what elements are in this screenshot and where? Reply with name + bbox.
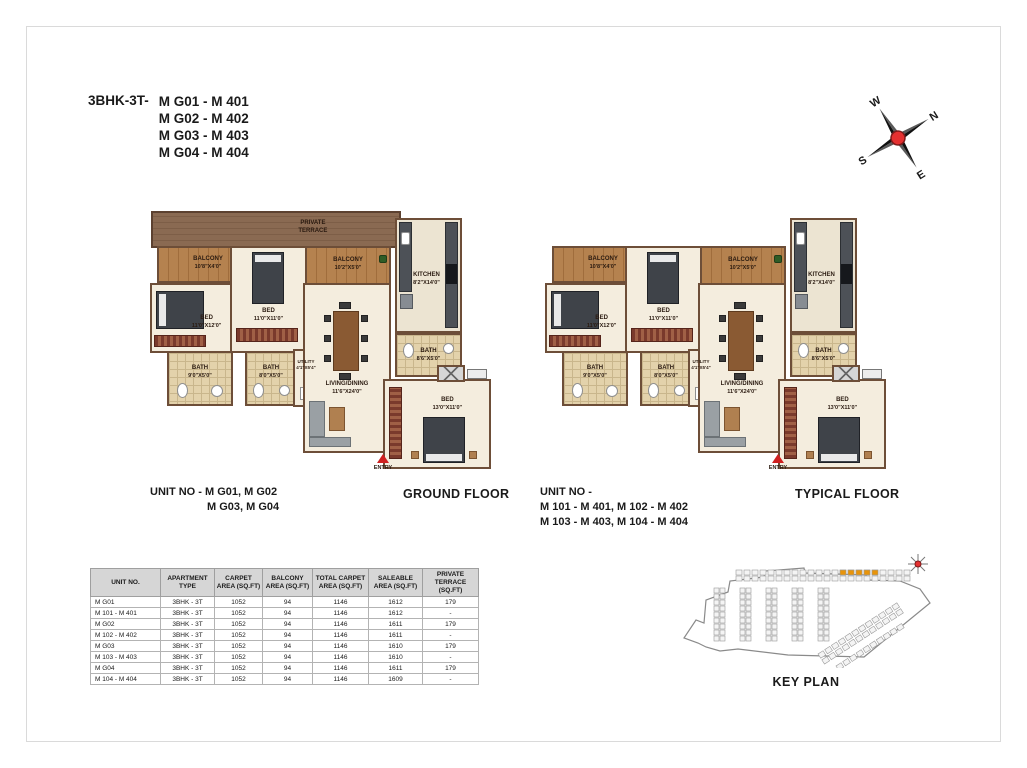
side-table-furniture <box>469 451 477 459</box>
table-cell: 1610 <box>369 652 423 663</box>
table-cell: 3BHK - 3T <box>161 641 215 652</box>
sofa-furniture <box>704 437 746 447</box>
table-cell: - <box>423 608 479 619</box>
balcony-mid: BALCONY 10'2"X5'0" <box>305 246 391 285</box>
bathroom-mid: BATH 8'0"X5'0" <box>245 351 297 406</box>
meter-box <box>862 369 882 379</box>
lift-shaft <box>832 365 860 382</box>
side-table-furniture <box>806 451 814 459</box>
title-unit-line: M G04 - M 404 <box>159 144 249 161</box>
compass-north: N <box>928 109 941 123</box>
table-cell: 1612 <box>369 608 423 619</box>
toilet-icon <box>572 383 583 398</box>
key-plan: KEY PLAN <box>670 550 942 689</box>
toilet-icon <box>253 383 264 398</box>
apartment-type-label: 3BHK-3T- <box>88 93 149 161</box>
table-cell: 1146 <box>313 619 369 630</box>
table-cell: 179 <box>423 597 479 608</box>
sink-icon <box>279 385 290 396</box>
chair-furniture <box>324 335 331 342</box>
room-label: BATH <box>587 365 603 371</box>
table-cell: M 104 - M 404 <box>91 674 161 685</box>
unit-line: UNIT NO - M G01, M G02 <box>150 485 279 500</box>
wardrobe-furniture <box>784 387 797 459</box>
room-label: BED <box>595 315 608 321</box>
table-row: M 101 - M 4013BHK - 3T10529411461612- <box>91 608 479 619</box>
unit-line: UNIT NO - <box>540 485 688 500</box>
table-cell: 94 <box>263 608 313 619</box>
room-label: BATH <box>192 365 208 371</box>
entry-label: ENTRY <box>363 465 403 471</box>
bathroom-left: BATH 9'0"X5'0" <box>167 351 233 406</box>
room-dim: 4'1"X5'4" <box>296 365 315 370</box>
table-row: M G023BHK - 3T10529411461611179 <box>91 619 479 630</box>
table-cell: M G02 <box>91 619 161 630</box>
private-terrace-area: PRIVATE TERRACE <box>151 211 401 248</box>
sofa-furniture <box>309 401 325 437</box>
table-cell: 94 <box>263 663 313 674</box>
table-cell: 3BHK - 3T <box>161 630 215 641</box>
kitchen-room: KITCHEN 8'2"X14'0" <box>790 218 857 333</box>
toilet-icon <box>648 383 659 398</box>
table-cell: 94 <box>263 652 313 663</box>
room-dim: 10'8"X4'0" <box>590 264 617 270</box>
table-header-cell: SALEABLE AREA (SQ.FT) <box>369 569 423 597</box>
table-cell: 94 <box>263 619 313 630</box>
compass-icon: W E N S <box>852 90 944 191</box>
room-label: BED <box>262 308 275 314</box>
table-cell: 1146 <box>313 597 369 608</box>
chair-furniture <box>719 335 726 342</box>
room-label: BALCONY <box>333 257 363 263</box>
table-header-cell: BALCONY AREA (SQ.FT) <box>263 569 313 597</box>
table-cell: 1052 <box>215 630 263 641</box>
sink-icon <box>674 385 685 396</box>
title-unit-line: M G01 - M 401 <box>159 93 249 110</box>
room-dim: 11'0"X12'0" <box>587 323 617 329</box>
table-cell: 1611 <box>369 619 423 630</box>
table-cell: 94 <box>263 674 313 685</box>
kitchen-room: KITCHEN 8'2"X14'0" <box>395 218 462 333</box>
table-cell: 1052 <box>215 641 263 652</box>
room-label: LIVING/DINING <box>721 381 764 387</box>
bed-furniture <box>818 417 860 463</box>
table-cell: 1611 <box>369 630 423 641</box>
chair-furniture <box>719 355 726 362</box>
table-cell: 1052 <box>215 674 263 685</box>
room-label: BATH <box>420 348 436 354</box>
area-table: UNIT NO.APARTMENT TYPECARPET AREA (SQ.FT… <box>90 568 479 685</box>
coffee-table-furniture <box>724 407 740 431</box>
chair-furniture <box>361 335 368 342</box>
table-header-cell: PRIVATE TERRACE (SQ.FT) <box>423 569 479 597</box>
room-dim: 8'0"X5'0" <box>654 373 678 379</box>
table-cell: 1052 <box>215 597 263 608</box>
bathroom-mid: BATH 8'0"X5'0" <box>640 351 692 406</box>
room-label: BATH <box>658 365 674 371</box>
title-unit-line: M G03 - M 403 <box>159 127 249 144</box>
side-table-furniture <box>864 451 872 459</box>
chair-furniture <box>339 302 351 309</box>
room-dim: 11'0"X11'0" <box>649 316 678 322</box>
ground-floor-title: GROUND FLOOR <box>403 487 509 501</box>
unit-line: M 101 - M 401, M 102 - M 402 <box>540 500 688 515</box>
room-dim: 11'0"X11'0" <box>254 316 283 322</box>
table-cell: - <box>423 630 479 641</box>
title-unit-lines: M G01 - M 401 M G02 - M 402 M G03 - M 40… <box>159 93 249 161</box>
bathroom-left: BATH 9'0"X5'0" <box>562 351 628 406</box>
room-dim: 13'0"X11'0" <box>433 405 463 411</box>
table-cell: M 103 - M 403 <box>91 652 161 663</box>
ground-floor-plan: PRIVATE TERRACE BALCONY 10'8"X4'0" BED 1… <box>145 205 493 481</box>
room-label: TERRACE <box>298 228 327 234</box>
table-row: M 102 - M 4023BHK - 3T10529411461611- <box>91 630 479 641</box>
typical-floor-title: TYPICAL FLOOR <box>795 487 899 501</box>
table-cell: M G03 <box>91 641 161 652</box>
table-cell: M G01 <box>91 597 161 608</box>
table-cell: 1146 <box>313 674 369 685</box>
table-cell: 1612 <box>369 597 423 608</box>
table-cell: - <box>423 674 479 685</box>
sink-icon <box>796 232 805 245</box>
chair-furniture <box>361 355 368 362</box>
table-cell: 3BHK - 3T <box>161 652 215 663</box>
room-label: KITCHEN <box>413 272 440 278</box>
table-cell: 1611 <box>369 663 423 674</box>
table-cell: 94 <box>263 641 313 652</box>
lift-shaft <box>437 365 465 382</box>
table-row: M 104 - M 4043BHK - 3T10529411461609- <box>91 674 479 685</box>
wardrobe-furniture <box>631 328 693 342</box>
room-dim: 4'1"X5'4" <box>691 365 710 370</box>
table-header-cell: APARTMENT TYPE <box>161 569 215 597</box>
table-cell: 179 <box>423 619 479 630</box>
table-cell: 1146 <box>313 630 369 641</box>
table-cell: M 102 - M 402 <box>91 630 161 641</box>
key-plan-label: KEY PLAN <box>670 675 942 689</box>
room-dim: 9'0"X5'0" <box>583 373 607 379</box>
table-cell: 94 <box>263 630 313 641</box>
room-label: BED <box>836 397 849 403</box>
compass-south: S <box>857 154 870 168</box>
chair-furniture <box>324 315 331 322</box>
table-cell: 3BHK - 3T <box>161 663 215 674</box>
chair-furniture <box>756 315 763 322</box>
room-label: BATH <box>815 348 831 354</box>
wardrobe-furniture <box>389 387 402 459</box>
area-table-header: UNIT NO.APARTMENT TYPECARPET AREA (SQ.FT… <box>91 569 479 597</box>
room-label: UTILITY <box>298 359 315 364</box>
sofa-furniture <box>309 437 351 447</box>
ground-floor-unit-label: UNIT NO - M G01, M G02 M G03, M G04 <box>150 485 279 515</box>
room-dim: 10'2"X5'0" <box>730 265 757 271</box>
dining-table-furniture <box>333 311 359 371</box>
table-cell: 3BHK - 3T <box>161 608 215 619</box>
table-cell: 94 <box>263 597 313 608</box>
table-header-cell: TOTAL CARPET AREA (SQ.FT) <box>313 569 369 597</box>
table-cell: 1146 <box>313 663 369 674</box>
balcony-mid: BALCONY 10'2"X5'0" <box>700 246 786 285</box>
room-dim: 10'2"X5'0" <box>335 265 362 271</box>
room-label: UTILITY <box>693 359 710 364</box>
room-label: BALCONY <box>588 256 618 262</box>
table-cell: - <box>423 652 479 663</box>
bedroom-left: BED 11'0"X12'0" <box>545 283 627 353</box>
side-table-furniture <box>411 451 419 459</box>
table-cell: 1052 <box>215 663 263 674</box>
meter-box <box>467 369 487 379</box>
chair-furniture <box>756 355 763 362</box>
chair-furniture <box>734 302 746 309</box>
chair-furniture <box>361 315 368 322</box>
bedroom-left: BED 11'0"X12'0" <box>150 283 232 353</box>
key-plan-map <box>670 550 942 668</box>
room-label: BALCONY <box>193 256 223 262</box>
table-cell: 1052 <box>215 652 263 663</box>
chair-furniture <box>756 335 763 342</box>
room-dim: 8'0"X5'0" <box>259 373 283 379</box>
room-dim: 9'0"X5'0" <box>188 373 212 379</box>
table-cell: 1146 <box>313 641 369 652</box>
title-unit-line: M G02 - M 402 <box>159 110 249 127</box>
table-cell: 3BHK - 3T <box>161 674 215 685</box>
unit-line: M G03, M G04 <box>150 500 279 515</box>
sink-icon <box>211 385 223 397</box>
table-header-cell: UNIT NO. <box>91 569 161 597</box>
wardrobe-furniture <box>154 335 206 347</box>
fridge-icon <box>400 294 413 309</box>
chair-furniture <box>324 355 331 362</box>
bedroom-right: BED 13'0"X11'0" <box>778 379 886 469</box>
room-dim: 13'0"X11'0" <box>828 405 858 411</box>
title-block: 3BHK-3T- M G01 - M 401 M G02 - M 402 M G… <box>88 93 249 161</box>
table-cell: M G04 <box>91 663 161 674</box>
table-row: M 103 - M 4033BHK - 3T10529411461610- <box>91 652 479 663</box>
room-dim: 11'6"X24'0" <box>332 389 362 395</box>
dining-table-furniture <box>728 311 754 371</box>
chair-furniture <box>719 315 726 322</box>
room-label: BED <box>657 308 670 314</box>
room-dim: 8'6"X5'0" <box>812 356 836 362</box>
typical-floor-plan: BALCONY 10'8"X4'0" BED 11'0"X11'0" BED 1… <box>540 205 888 481</box>
room-label: BED <box>441 397 454 403</box>
chair-furniture <box>339 373 351 380</box>
room-label: BATH <box>263 365 279 371</box>
room-label: LIVING/DINING <box>326 381 369 387</box>
table-cell: 179 <box>423 663 479 674</box>
table-cell: 1052 <box>215 608 263 619</box>
bed-furniture <box>423 417 465 463</box>
wardrobe-furniture <box>549 335 601 347</box>
chair-furniture <box>734 373 746 380</box>
room-label: BED <box>200 315 213 321</box>
room-dim: 11'6"X24'0" <box>727 389 757 395</box>
wardrobe-furniture <box>236 328 298 342</box>
room-dim: 8'2"X14'0" <box>413 280 440 286</box>
sink-icon <box>401 232 410 245</box>
typical-floor-unit-label: UNIT NO - M 101 - M 401, M 102 - M 402 M… <box>540 485 688 530</box>
compass-west: W <box>868 94 884 110</box>
table-cell: 1610 <box>369 641 423 652</box>
table-row: M G033BHK - 3T10529411461610179 <box>91 641 479 652</box>
room-dim: 10'8"X4'0" <box>195 264 222 270</box>
room-label: KITCHEN <box>808 272 835 278</box>
room-label: PRIVATE <box>300 220 325 226</box>
table-cell: 3BHK - 3T <box>161 597 215 608</box>
table-cell: 3BHK - 3T <box>161 619 215 630</box>
table-row: M G043BHK - 3T10529411461611179 <box>91 663 479 674</box>
sofa-furniture <box>704 401 720 437</box>
table-cell: 1609 <box>369 674 423 685</box>
room-dim: 11'0"X12'0" <box>192 323 222 329</box>
table-header-cell: CARPET AREA (SQ.FT) <box>215 569 263 597</box>
table-cell: 1146 <box>313 652 369 663</box>
coffee-table-furniture <box>329 407 345 431</box>
room-dim: 8'6"X5'0" <box>417 356 441 362</box>
unit-line: M 103 - M 403, M 104 - M 404 <box>540 515 688 530</box>
toilet-icon <box>177 383 188 398</box>
entry-label: ENTRY <box>758 465 798 471</box>
table-cell: 179 <box>423 641 479 652</box>
sink-icon <box>606 385 618 397</box>
room-label: BALCONY <box>728 257 758 263</box>
table-cell: 1052 <box>215 619 263 630</box>
fridge-icon <box>795 294 808 309</box>
table-cell: M 101 - M 401 <box>91 608 161 619</box>
bedroom-right: BED 13'0"X11'0" <box>383 379 491 469</box>
room-dim: 8'2"X14'0" <box>808 280 835 286</box>
compass-east: E <box>915 168 928 182</box>
entry-arrow-icon <box>377 454 389 463</box>
table-row: M G013BHK - 3T10529411461612179 <box>91 597 479 608</box>
table-cell: 1146 <box>313 608 369 619</box>
entry-arrow-icon <box>772 454 784 463</box>
